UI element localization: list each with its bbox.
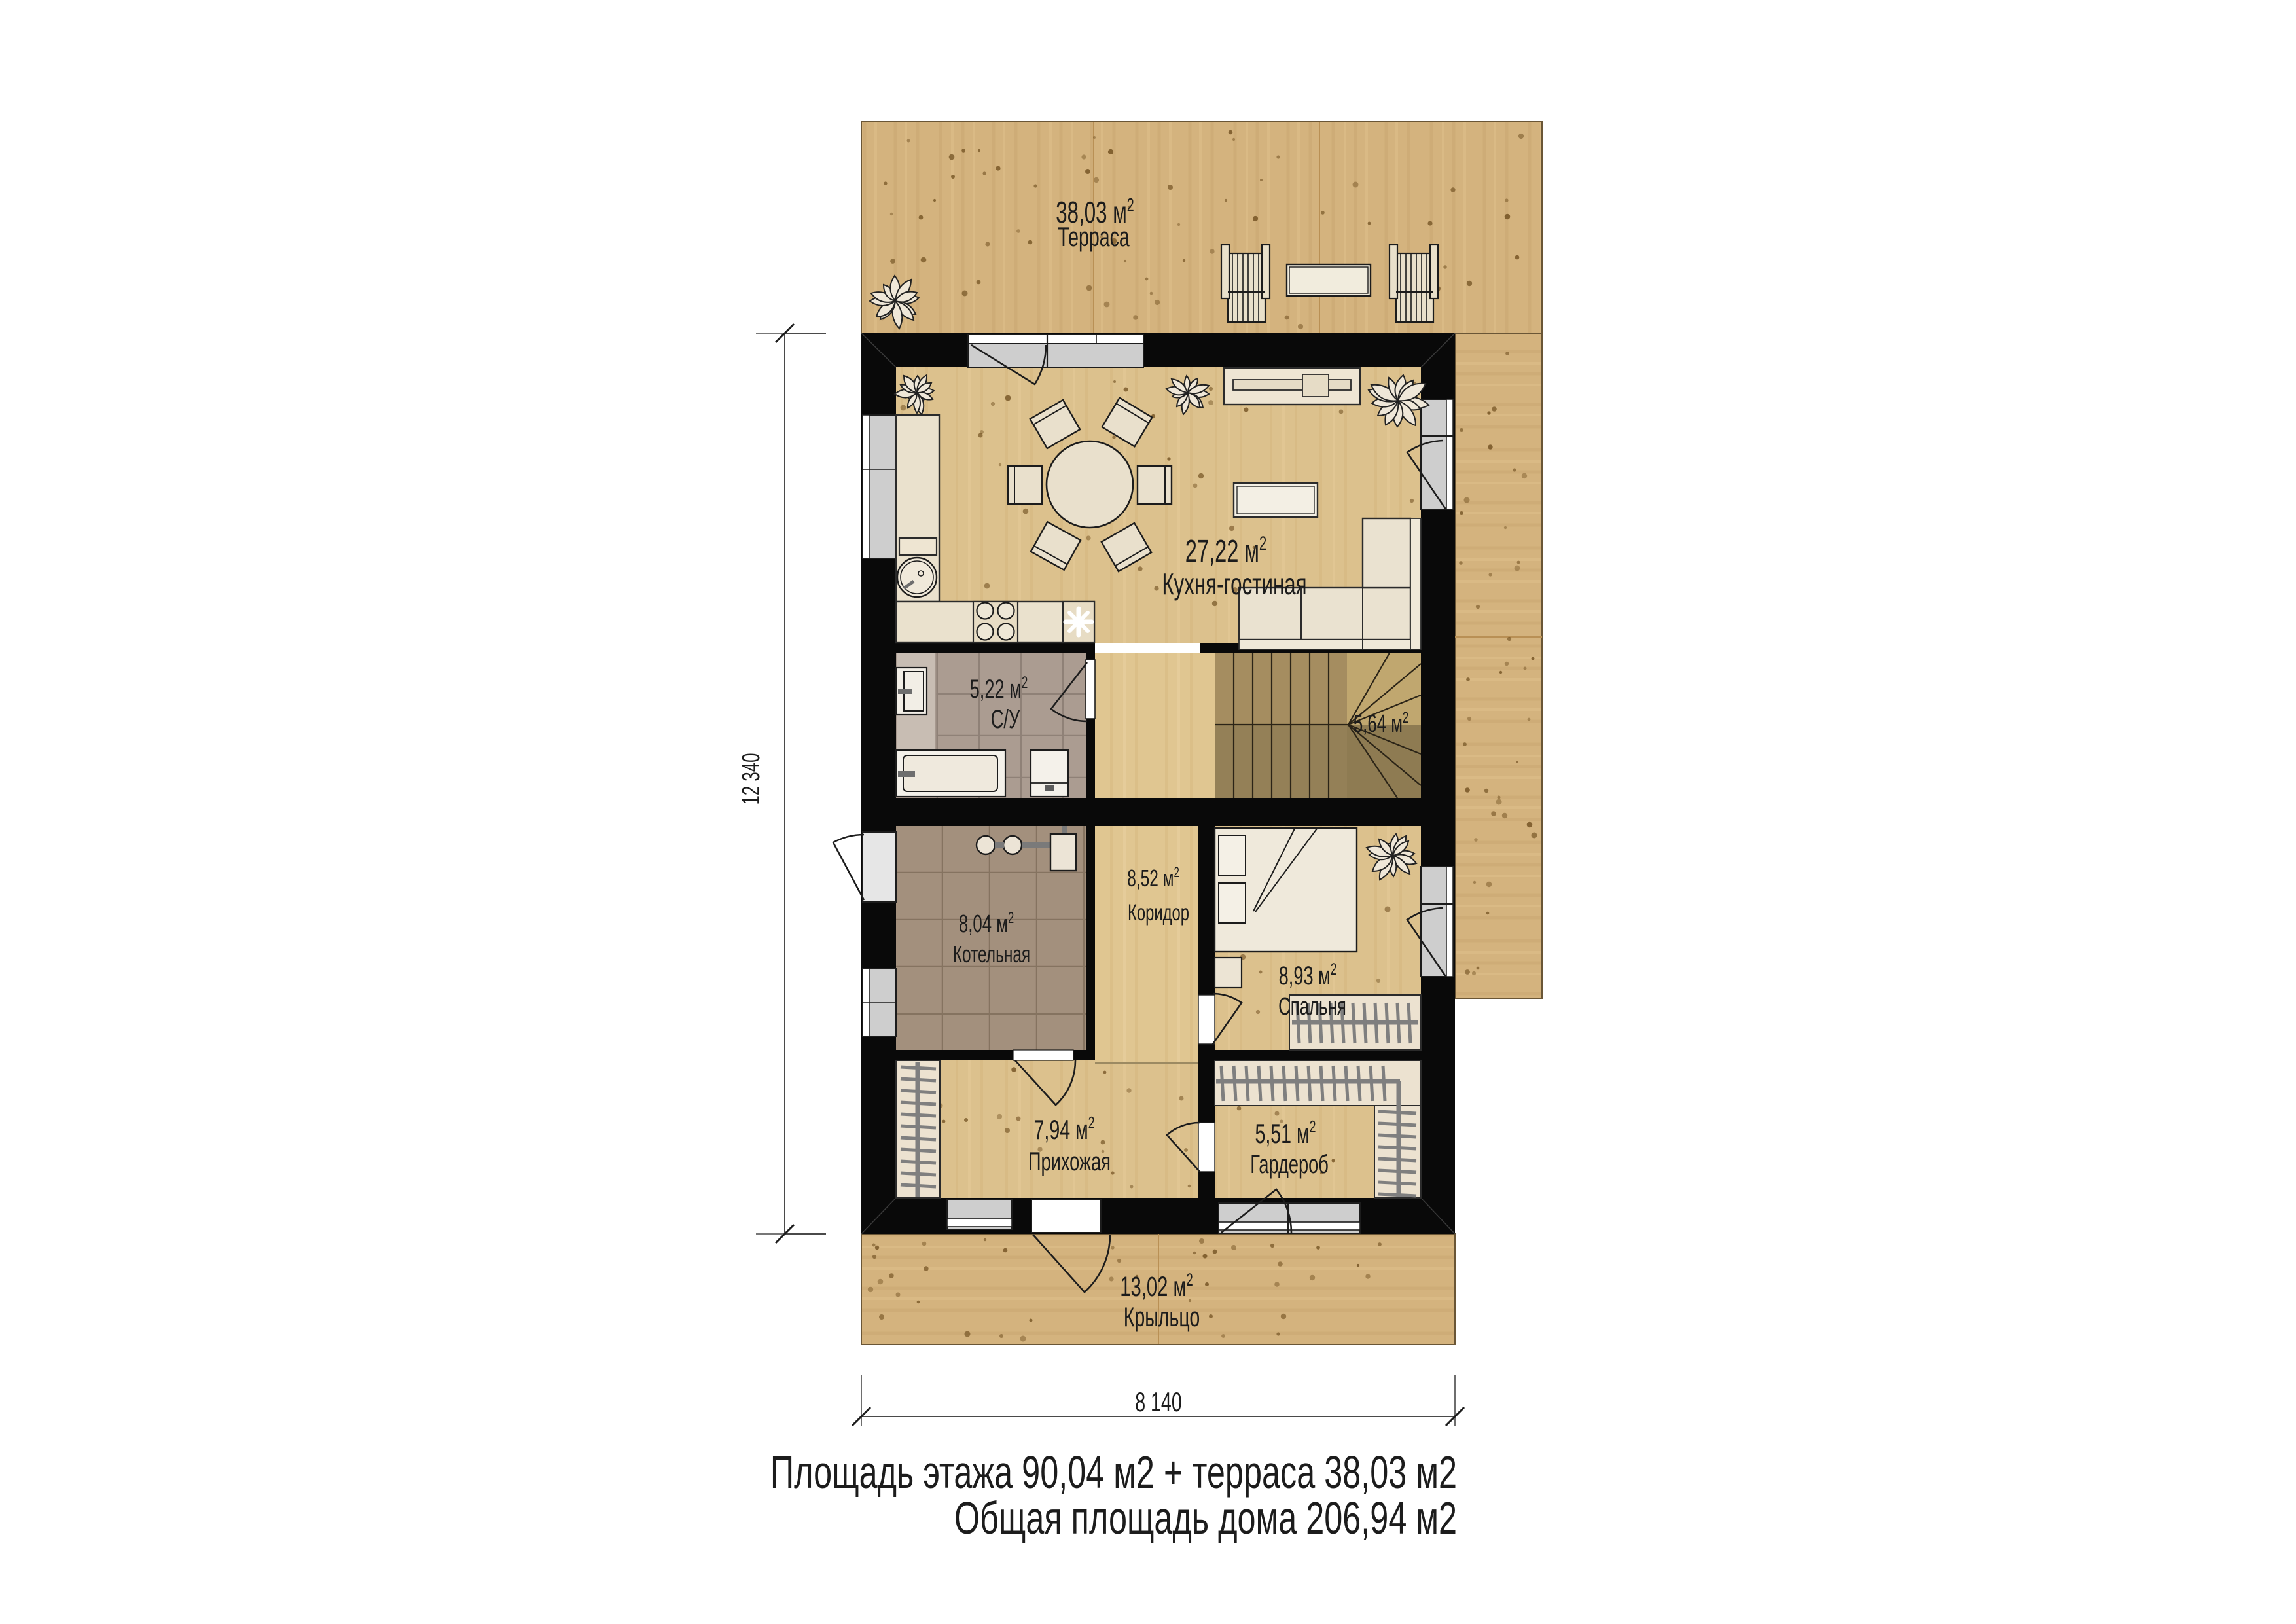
svg-text:27,22 м2: 27,22 м2 bbox=[1185, 533, 1267, 568]
svg-text:Площадь этажа 90,04 м2 + терра: Площадь этажа 90,04 м2 + терраса 38,03 м… bbox=[770, 1447, 1457, 1498]
svg-text:Прихожая: Прихожая bbox=[1028, 1147, 1111, 1176]
svg-text:5,51 м2: 5,51 м2 bbox=[1255, 1117, 1316, 1149]
svg-text:5,64 м2: 5,64 м2 bbox=[1354, 709, 1408, 737]
svg-text:Спальня: Спальня bbox=[1278, 992, 1346, 1020]
svg-text:13,02 м2: 13,02 м2 bbox=[1120, 1269, 1193, 1302]
svg-text:Крыльцо: Крыльцо bbox=[1124, 1301, 1200, 1332]
svg-text:Гардероб: Гардероб bbox=[1250, 1150, 1329, 1179]
svg-text:Терраса: Терраса bbox=[1058, 221, 1130, 252]
svg-text:Общая площадь дома 206,94 м2: Общая площадь дома 206,94 м2 bbox=[954, 1492, 1457, 1543]
svg-text:5,22 м2: 5,22 м2 bbox=[970, 674, 1028, 704]
svg-text:12 340: 12 340 bbox=[737, 753, 764, 804]
svg-text:8,52 м2: 8,52 м2 bbox=[1127, 864, 1179, 892]
svg-text:7,94 м2: 7,94 м2 bbox=[1034, 1113, 1095, 1146]
svg-text:8 140: 8 140 bbox=[1135, 1386, 1181, 1417]
svg-text:Коридор: Коридор bbox=[1128, 901, 1189, 926]
svg-text:8,93 м2: 8,93 м2 bbox=[1279, 960, 1337, 991]
svg-text:С/У: С/У bbox=[991, 705, 1020, 734]
svg-text:8,04 м2: 8,04 м2 bbox=[959, 909, 1014, 937]
svg-text:Кухня-гостиная: Кухня-гостиная bbox=[1162, 568, 1306, 601]
svg-text:Котельная: Котельная bbox=[953, 941, 1030, 967]
